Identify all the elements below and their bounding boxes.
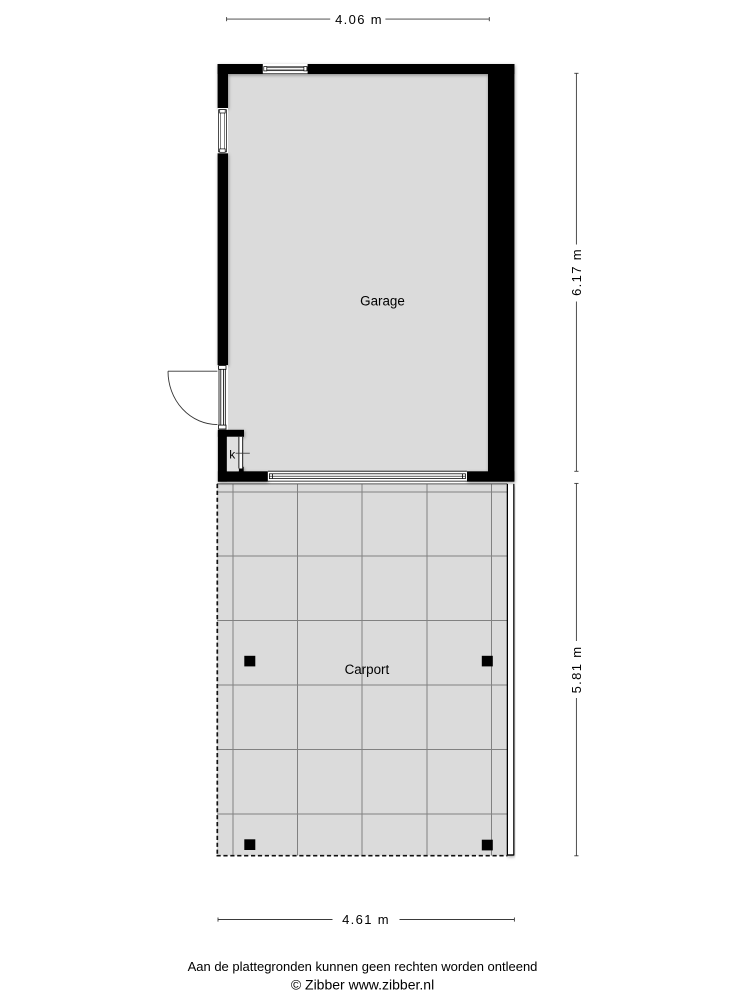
svg-text:4.61 m: 4.61 m — [342, 912, 390, 927]
svg-text:6.17 m: 6.17 m — [569, 248, 584, 296]
svg-text:5.81 m: 5.81 m — [569, 646, 584, 694]
svg-text:4.06 m: 4.06 m — [335, 12, 383, 27]
svg-text:© Zibber www.zibber.nl: © Zibber www.zibber.nl — [291, 976, 434, 992]
svg-text:Garage: Garage — [360, 293, 405, 308]
svg-text:k: k — [229, 448, 236, 462]
svg-text:Aan de plattegronden kunnen ge: Aan de plattegronden kunnen geen rechten… — [188, 959, 538, 974]
svg-text:Carport: Carport — [345, 662, 390, 677]
